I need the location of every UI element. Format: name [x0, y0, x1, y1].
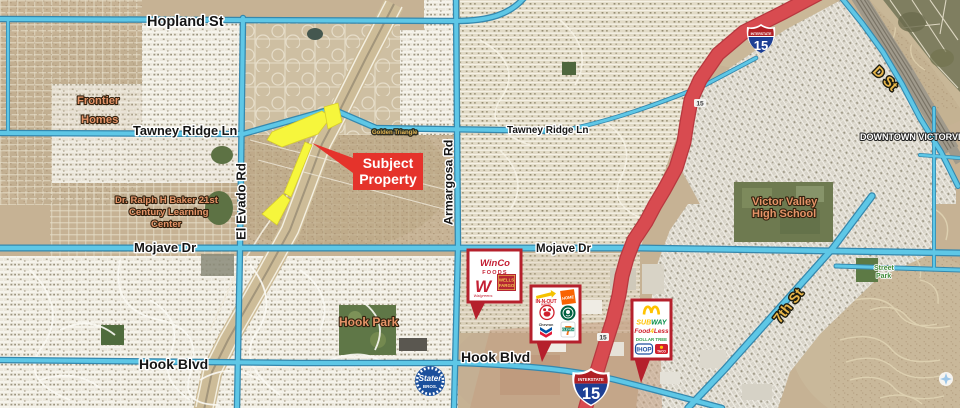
- svg-text:15: 15: [599, 335, 607, 342]
- svg-text:Stater: Stater: [419, 374, 443, 383]
- svg-text:Golden Triangle: Golden Triangle: [372, 130, 418, 136]
- svg-text:15: 15: [696, 101, 704, 108]
- svg-text:FARGO: FARGO: [499, 283, 515, 288]
- svg-text:Century Learning: Century Learning: [129, 207, 209, 218]
- svg-text:Dr. Ralph H Baker 21st: Dr. Ralph H Baker 21st: [115, 195, 219, 206]
- svg-text:Armargosa Rd: Armargosa Rd: [442, 140, 456, 225]
- svg-text:WELLS: WELLS: [499, 278, 514, 283]
- svg-text:15: 15: [582, 385, 600, 403]
- svg-text:Mojave Dr: Mojave Dr: [134, 240, 196, 255]
- svg-text:Subject: Subject: [363, 155, 414, 171]
- svg-text:Street: Street: [874, 265, 895, 272]
- svg-text:BROS.: BROS.: [423, 384, 437, 389]
- svg-text:DOLLAR TREE: DOLLAR TREE: [636, 337, 667, 342]
- svg-text:ELEVEn: ELEVEn: [562, 328, 574, 332]
- svg-text:Hook Blvd: Hook Blvd: [461, 349, 530, 365]
- svg-text:High School: High School: [752, 208, 816, 220]
- svg-text:WinCo: WinCo: [480, 258, 510, 269]
- svg-text:Hook Park: Hook Park: [339, 315, 399, 329]
- svg-text:Homes: Homes: [81, 114, 118, 126]
- svg-text:El Evado Rd: El Evado Rd: [234, 163, 249, 240]
- svg-text:15: 15: [754, 38, 768, 53]
- svg-text:Walgreens: Walgreens: [473, 293, 492, 298]
- svg-text:Victor Valley: Victor Valley: [752, 196, 818, 208]
- svg-text:Park: Park: [876, 273, 891, 280]
- svg-text:Hopland St: Hopland St: [147, 14, 224, 30]
- svg-text:Chevron: Chevron: [539, 323, 554, 327]
- svg-text:IHOP: IHOP: [636, 347, 651, 354]
- svg-text:INTERSTATE: INTERSTATE: [578, 377, 604, 382]
- svg-text:Frontier: Frontier: [77, 95, 120, 107]
- svg-text:DOWNTOWN VICTORVILL: DOWNTOWN VICTORVILL: [860, 132, 960, 142]
- svg-text:TACO: TACO: [657, 350, 666, 354]
- svg-text:INTERSTATE: INTERSTATE: [751, 32, 773, 36]
- svg-text:Center: Center: [151, 219, 182, 230]
- svg-text:Tawney Ridge Ln: Tawney Ridge Ln: [507, 125, 589, 136]
- svg-text:Hook Blvd: Hook Blvd: [139, 356, 208, 372]
- svg-text:SUBWAY: SUBWAY: [636, 320, 668, 327]
- svg-text:Tawney Ridge Ln: Tawney Ridge Ln: [133, 123, 237, 138]
- svg-text:Food4Less: Food4Less: [634, 328, 669, 335]
- svg-text:Mojave Dr: Mojave Dr: [536, 243, 591, 255]
- svg-text:Property: Property: [359, 171, 417, 187]
